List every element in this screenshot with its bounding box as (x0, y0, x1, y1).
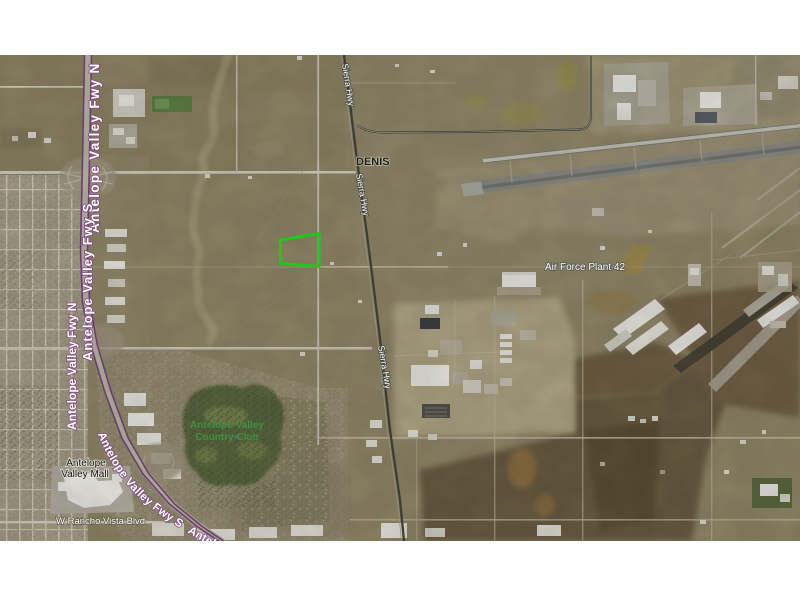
svg-text:Country Club: Country Club (195, 432, 258, 443)
svg-text:Antelope Valley Fwy S: Antelope Valley Fwy S (80, 203, 95, 361)
svg-text:Air Force Plant 42: Air Force Plant 42 (545, 262, 625, 273)
svg-text:Valley Mall: Valley Mall (61, 469, 109, 480)
svg-text:Antelope Valley: Antelope Valley (190, 420, 264, 431)
svg-text:DENIS: DENIS (356, 156, 390, 168)
svg-text:W Rancho Vista Blvd: W Rancho Vista Blvd (56, 516, 145, 527)
svg-text:Antelope Valley Fwy N: Antelope Valley Fwy N (65, 303, 79, 430)
svg-text:Antelope: Antelope (66, 458, 106, 469)
